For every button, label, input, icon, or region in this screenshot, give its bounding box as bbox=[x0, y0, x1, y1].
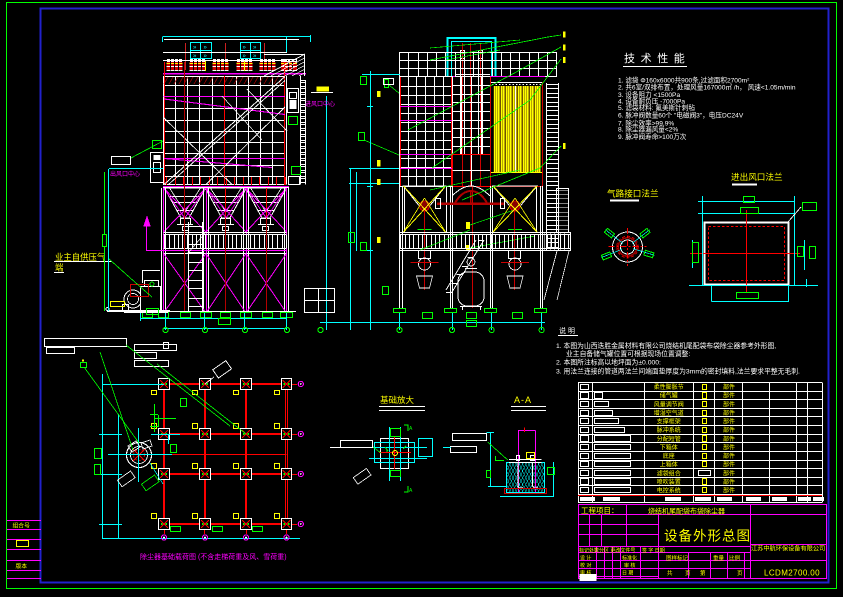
svg-text:气路接口法兰: 气路接口法兰 bbox=[607, 188, 659, 199]
svg-text:1. 滤袋 Φ160x6000共900条,过滤面积2700m: 1. 滤袋 Φ160x6000共900条,过滤面积2700m2 bbox=[618, 76, 750, 85]
svg-text:除尘器基础载荷图 (不含走梯荷重及风、雪荷重): 除尘器基础载荷图 (不含走梯荷重及风、雪荷重) bbox=[140, 552, 287, 561]
svg-text:业主自供压气: 业主自供压气 bbox=[55, 252, 106, 262]
svg-text:技术性能: 技术性能 bbox=[624, 51, 690, 65]
svg-text:校 对: 校 对 bbox=[580, 562, 591, 569]
svg-text:部件: 部件 bbox=[723, 409, 735, 417]
svg-text:部件: 部件 bbox=[723, 478, 735, 486]
svg-text:部件: 部件 bbox=[723, 400, 735, 408]
svg-text:审 核: 审 核 bbox=[624, 562, 635, 569]
svg-text:设备外形总图: 设备外形总图 bbox=[664, 528, 751, 544]
svg-text:部件: 部件 bbox=[723, 392, 735, 400]
svg-text:储气罐: 储气罐 bbox=[660, 392, 678, 400]
svg-text:图样标记: 图样标记 bbox=[666, 554, 689, 562]
svg-text:标记处数分区 更改文件号: 标记处数分区 更改文件号 bbox=[579, 547, 635, 554]
svg-text:部件: 部件 bbox=[723, 443, 735, 451]
svg-text:重量: 重量 bbox=[713, 554, 725, 562]
svg-text:业主自备储气罐位置可根据现场位置调整:: 业主自备储气罐位置可根据现场位置调整: bbox=[566, 349, 690, 358]
svg-text:出风口中心: 出风口中心 bbox=[110, 170, 140, 178]
svg-text:基础放大: 基础放大 bbox=[380, 395, 415, 405]
svg-text:6. 脉冲阀数量60个 "电磁阀3"，电压DC24V: 6. 脉冲阀数量60个 "电磁阀3"，电压DC24V bbox=[618, 110, 744, 119]
svg-text:标准化: 标准化 bbox=[622, 555, 637, 562]
svg-text:部件: 部件 bbox=[723, 452, 735, 460]
svg-text:LCDM2700.00: LCDM2700.00 bbox=[764, 569, 820, 578]
svg-text:3. 设备阻力 <1500Pa: 3. 设备阻力 <1500Pa bbox=[618, 90, 680, 99]
svg-text:签 字 日期: 签 字 日期 bbox=[642, 547, 665, 554]
svg-text:部件: 部件 bbox=[723, 486, 735, 494]
svg-text:部件: 部件 bbox=[723, 461, 735, 469]
svg-text:江苏中航环保设备有限公司: 江苏中航环保设备有限公司 bbox=[751, 545, 825, 553]
svg-text:1. 本图为山西迭胜金属材料有限公司烧结机尾配袋布袋除尘器参: 1. 本图为山西迭胜金属材料有限公司烧结机尾配袋布袋除尘器参考外形图, bbox=[556, 341, 776, 350]
svg-text:8. 除尘器漏风量<2%: 8. 除尘器漏风量<2% bbox=[618, 125, 678, 134]
svg-text:5. 滤袋材料: 氟美斯针刺毡: 5. 滤袋材料: 氟美斯针刺毡 bbox=[618, 103, 695, 112]
svg-text:进出风口法兰: 进出风口法兰 bbox=[731, 171, 783, 182]
svg-text:2. 本图所注标高以地坪面为±0.000:: 2. 本图所注标高以地坪面为±0.000: bbox=[556, 358, 661, 367]
svg-text:上箱体: 上箱体 bbox=[660, 461, 678, 469]
svg-text:设 计: 设 计 bbox=[580, 555, 591, 562]
svg-text:工程项目：: 工程项目： bbox=[581, 506, 619, 515]
svg-text:进风口中心: 进风口中心 bbox=[305, 100, 335, 108]
svg-text:说 明: 说 明 bbox=[559, 326, 575, 335]
svg-text:脉冲系统: 脉冲系统 bbox=[657, 426, 681, 434]
svg-text:部件: 部件 bbox=[723, 426, 735, 434]
svg-text:风量调节阀: 风量调节阀 bbox=[654, 400, 684, 408]
svg-text:增湿空气道: 增湿空气道 bbox=[654, 409, 684, 417]
svg-text:3. 用法兰连接的管道两法兰间端面垫厚度为3mm的密封填料,: 3. 用法兰连接的管道两法兰间端面垫厚度为3mm的密封填料,法兰要求平整无毛刺. bbox=[556, 367, 800, 376]
svg-text:滤袋组合: 滤袋组合 bbox=[657, 469, 681, 477]
svg-text:柔性膨胀节: 柔性膨胀节 bbox=[654, 383, 684, 391]
svg-text:电控系统: 电控系统 bbox=[657, 486, 681, 494]
svg-text:日 期: 日 期 bbox=[622, 571, 633, 577]
svg-text:部件: 部件 bbox=[723, 418, 735, 426]
svg-text:端: 端 bbox=[55, 263, 64, 273]
svg-text:页: 页 bbox=[685, 570, 691, 577]
svg-text:烧结机尾配袋布袋除尘器: 烧结机尾配袋布袋除尘器 bbox=[648, 507, 725, 516]
svg-text:底座: 底座 bbox=[663, 452, 675, 460]
svg-text:共: 共 bbox=[667, 569, 673, 577]
svg-text:比例: 比例 bbox=[729, 554, 741, 562]
svg-text:A-A: A-A bbox=[514, 395, 532, 405]
svg-text:部件: 部件 bbox=[723, 435, 735, 443]
svg-text:部件: 部件 bbox=[723, 383, 735, 391]
svg-text:支撑框架: 支撑框架 bbox=[657, 418, 681, 426]
svg-text:第: 第 bbox=[700, 569, 706, 577]
svg-text:9. 脉冲阀寿命>100万次: 9. 脉冲阀寿命>100万次 bbox=[618, 132, 687, 141]
svg-text:组合号: 组合号 bbox=[13, 522, 31, 530]
svg-text:下箱体: 下箱体 bbox=[660, 443, 678, 451]
svg-text:喷吹装置: 喷吹装置 bbox=[657, 478, 681, 486]
svg-text:版本: 版本 bbox=[16, 562, 28, 570]
svg-text:部件: 部件 bbox=[723, 469, 735, 477]
svg-text:页: 页 bbox=[737, 570, 743, 577]
svg-text:分配短管: 分配短管 bbox=[657, 435, 681, 443]
svg-text:2. 共6室/双排布置，处理风量167000㎥ /h， 风速: 2. 共6室/双排布置，处理风量167000㎥ /h， 风速<1.05m/min bbox=[618, 83, 796, 92]
